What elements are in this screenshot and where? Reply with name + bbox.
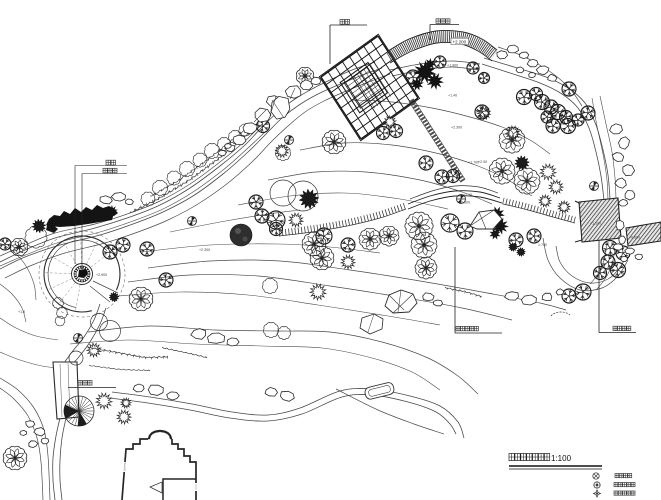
svg-text:1.700: 1.700 <box>538 243 547 247</box>
svg-text:+2.300: +2.300 <box>451 126 462 130</box>
svg-text:+2.200: +2.200 <box>453 39 467 44</box>
svg-text:+1.500: +1.500 <box>459 201 470 205</box>
svg-text:+1.100: +1.100 <box>590 222 601 226</box>
svg-text:· · ·: · · · <box>556 317 561 321</box>
svg-text:1:100: 1:100 <box>551 454 572 463</box>
svg-text:+0.600: +0.600 <box>629 236 640 240</box>
svg-text:+1.6: +1.6 <box>18 310 25 314</box>
svg-text:+1.40: +1.40 <box>448 94 457 98</box>
svg-text:+1.900: +1.900 <box>447 64 458 68</box>
svg-text:+2.300: +2.300 <box>199 248 210 252</box>
svg-text:+2.900: +2.900 <box>96 273 107 277</box>
svg-text:+2.90: +2.90 <box>478 160 487 164</box>
svg-text:+1.10: +1.10 <box>463 193 472 197</box>
